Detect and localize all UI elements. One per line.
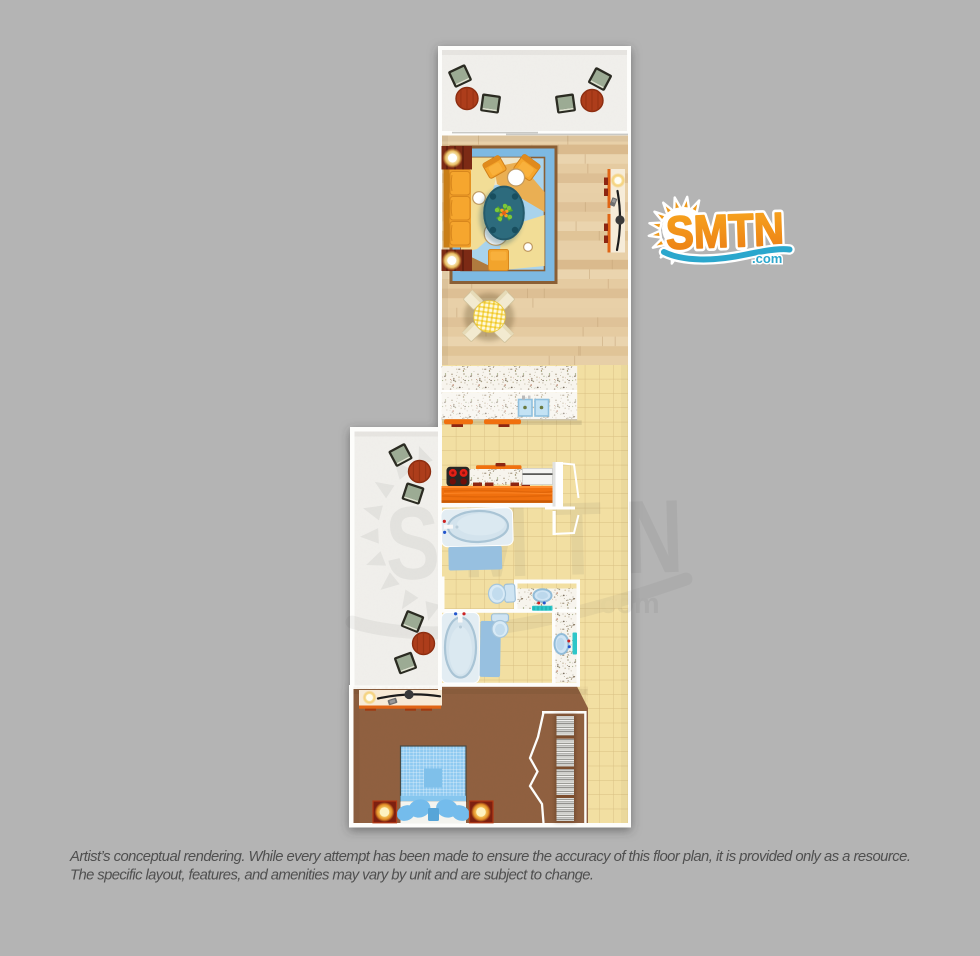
svg-text:Artist’s conceptual rendering.: Artist’s conceptual rendering. While eve… bbox=[69, 849, 911, 865]
svg-text:.com: .com bbox=[592, 588, 660, 620]
svg-text:The specific layout, features,: The specific layout, features, and ameni… bbox=[70, 868, 594, 884]
svg-text:.com: .com bbox=[752, 251, 782, 266]
